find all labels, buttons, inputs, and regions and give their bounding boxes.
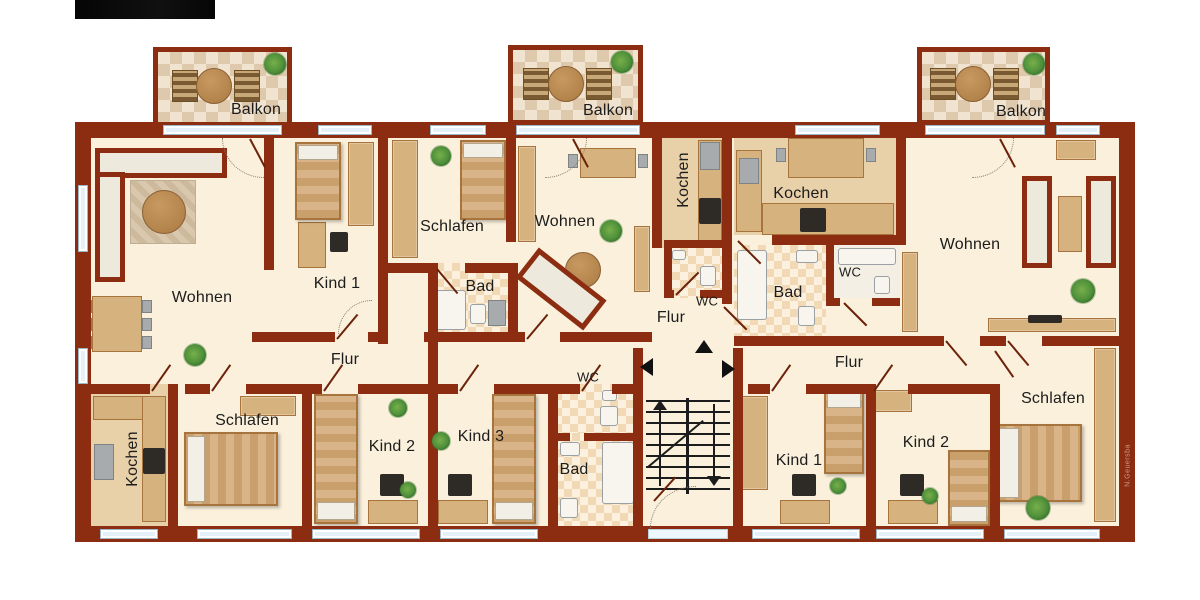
wardrobe: [1094, 348, 1116, 522]
wall: [506, 138, 516, 242]
balcony-chairs-icon: [172, 70, 198, 102]
wall: [302, 384, 312, 526]
balcony-chairs-icon: [523, 68, 549, 100]
stove-icon: [699, 198, 721, 224]
floor-plan: Balkon Balkon Balkon Wohnen Kind 1 Flur …: [0, 0, 1200, 600]
chair: [142, 300, 152, 313]
sofa: [1022, 176, 1052, 268]
watermark: N.Geuersba: [1125, 442, 1132, 490]
room-label-kochen-lower-left: Kochen: [124, 431, 142, 486]
wall: [436, 384, 458, 394]
room-label-balkon-middle: Balkon: [583, 102, 633, 120]
pillow: [317, 502, 355, 520]
pillow: [298, 145, 338, 160]
balcony-chairs-icon: [930, 68, 956, 100]
balcony-table-icon: [955, 66, 991, 102]
window: [78, 348, 88, 384]
bathtub: [602, 442, 634, 504]
window: [163, 125, 282, 135]
plant-icon: [1023, 53, 1045, 75]
room-label-wohnen-middle: Wohnen: [535, 213, 596, 231]
bathtub: [737, 250, 767, 320]
toilet-icon: [600, 406, 618, 426]
room-label-kochen-middle: Kochen: [675, 152, 693, 207]
toilet-icon: [874, 276, 890, 294]
toilet-icon: [798, 306, 815, 326]
wall: [772, 235, 906, 245]
chair: [866, 148, 876, 162]
wall: [560, 332, 652, 342]
stair-arrow-down-line: [713, 404, 715, 478]
stair-arrow-up-line: [659, 408, 661, 486]
wall: [826, 245, 834, 298]
wall: [826, 298, 840, 306]
sink-icon: [560, 442, 580, 456]
wall: [428, 263, 438, 526]
wall: [652, 138, 662, 248]
plant-icon: [600, 220, 622, 242]
pillow: [495, 502, 533, 520]
cabinet: [902, 252, 918, 332]
plant-icon: [431, 146, 451, 166]
plant-icon: [389, 399, 407, 417]
wall: [494, 384, 554, 394]
stove-icon: [143, 448, 165, 474]
toilet-icon: [470, 304, 486, 324]
desk-chair: [792, 474, 816, 496]
wall: [358, 384, 436, 394]
room-label-wohnen-right: Wohnen: [940, 236, 1001, 254]
chair: [638, 154, 648, 168]
plant-icon: [400, 482, 416, 498]
balcony-chairs-icon: [586, 68, 612, 100]
stair-stringer: [686, 398, 689, 494]
plant-icon: [432, 432, 450, 450]
pillow: [827, 393, 861, 408]
cabinet: [1056, 140, 1096, 160]
room-label-flur-right: Flur: [835, 354, 863, 372]
window: [312, 529, 420, 539]
direction-arrow-icon: [640, 358, 653, 376]
room-label-kind1-left: Kind 1: [314, 275, 361, 293]
wall: [424, 332, 525, 342]
pillow: [463, 143, 503, 158]
desk-chair: [330, 232, 348, 252]
stair-arrow-down-icon: [707, 476, 721, 486]
coffee-table: [1058, 196, 1082, 252]
plant-icon: [1026, 496, 1050, 520]
window: [752, 529, 860, 539]
plant-icon: [830, 478, 846, 494]
sink-icon: [739, 158, 759, 184]
room-label-wohnen-left: Wohnen: [172, 289, 233, 307]
fridge: [700, 142, 720, 170]
stove-icon: [800, 208, 826, 232]
room-label-kind2-right: Kind 2: [903, 434, 950, 452]
plant-icon: [611, 51, 633, 73]
entrance-door[interactable]: [648, 529, 728, 539]
room-label-flur-middle: Flur: [657, 309, 685, 327]
room-label-wc-right: WC: [839, 265, 861, 280]
balcony-chairs-icon: [993, 68, 1019, 100]
plant-icon: [264, 53, 286, 75]
room-label-bad-middle: Bad: [465, 278, 494, 296]
wall: [168, 384, 178, 526]
window: [925, 125, 1045, 135]
window: [440, 529, 538, 539]
chair: [776, 148, 786, 162]
logo-bar: [75, 0, 215, 19]
room-label-wc-middle: WC: [696, 294, 718, 309]
plant-icon: [1071, 279, 1095, 303]
desk-chair: [900, 474, 924, 496]
wall: [264, 138, 274, 270]
wall: [252, 332, 335, 342]
wardrobe: [872, 390, 912, 412]
window: [78, 185, 88, 252]
wardrobe: [348, 142, 374, 226]
chair: [142, 336, 152, 349]
balcony-chairs-icon: [234, 70, 260, 102]
wall: [378, 138, 388, 344]
balcony-table-icon: [548, 66, 584, 102]
window: [100, 529, 158, 539]
pillow: [999, 428, 1019, 498]
washer-icon: [488, 300, 506, 326]
desk: [368, 500, 418, 524]
wall: [548, 384, 558, 526]
room-label-balkon-left: Balkon: [231, 101, 281, 119]
wall: [556, 433, 570, 441]
tv-icon: [1028, 315, 1062, 323]
wall: [664, 240, 722, 248]
wall: [584, 433, 640, 441]
toilet-icon: [700, 266, 716, 286]
window: [1056, 125, 1100, 135]
sink-icon: [672, 250, 686, 260]
window: [516, 125, 640, 135]
direction-arrow-icon: [695, 340, 713, 353]
wall: [980, 336, 1006, 346]
room-label-kind1-right: Kind 1: [776, 452, 823, 470]
kitchen-counter: [762, 203, 894, 235]
sofa: [1086, 176, 1116, 268]
desk: [780, 500, 830, 524]
room-label-schlafen-middle: Schlafen: [420, 218, 484, 236]
wall: [806, 384, 872, 394]
wall: [91, 384, 150, 394]
window: [197, 529, 292, 539]
sink-icon: [796, 250, 818, 263]
wall: [866, 384, 876, 526]
dining-table: [788, 138, 864, 178]
room-label-flur-left: Flur: [331, 351, 359, 369]
wall: [508, 263, 518, 342]
desk: [298, 222, 326, 268]
wall: [185, 384, 210, 394]
wall: [722, 138, 732, 304]
window: [430, 125, 486, 135]
toilet-icon: [560, 498, 578, 518]
wardrobe: [740, 396, 768, 490]
bathtub: [838, 248, 896, 265]
room-label-kochen-right: Kochen: [773, 185, 828, 203]
wall: [664, 290, 674, 298]
stair-arrow-up-icon: [653, 400, 667, 410]
dining-table: [92, 296, 142, 352]
window: [1004, 529, 1100, 539]
wardrobe: [392, 140, 418, 258]
wall: [734, 336, 944, 346]
room-label-bad-right: Bad: [773, 284, 802, 302]
balcony-table-icon: [196, 68, 232, 104]
dining-table: [580, 148, 636, 178]
plant-icon: [922, 488, 938, 504]
room-label-schlafen-right: Schlafen: [1021, 390, 1085, 408]
cabinet: [634, 226, 650, 292]
desk: [438, 500, 488, 524]
wall: [896, 138, 906, 245]
wall: [1042, 336, 1119, 346]
wall: [990, 384, 1000, 526]
chair: [142, 318, 152, 331]
room-label-schlafen-lower-left: Schlafen: [215, 412, 279, 430]
wardrobe: [518, 146, 536, 242]
pillow: [951, 506, 987, 522]
coffee-table-icon: [142, 190, 186, 234]
window: [318, 125, 372, 135]
room-label-kind2-left: Kind 2: [369, 438, 416, 456]
wall: [908, 384, 998, 394]
room-label-bad-lower: Bad: [559, 461, 588, 479]
room-label-balkon-right: Balkon: [996, 103, 1046, 121]
plant-icon: [184, 344, 206, 366]
sofa: [95, 172, 125, 282]
room-label-wc-stairwell: WC: [577, 370, 599, 385]
window: [795, 125, 880, 135]
room-label-kind3-middle: Kind 3: [458, 428, 505, 446]
direction-arrow-icon: [722, 360, 735, 378]
wall: [748, 384, 770, 394]
desk-chair: [448, 474, 472, 496]
wall: [872, 298, 900, 306]
fridge: [94, 444, 114, 480]
window: [876, 529, 984, 539]
pillow: [187, 436, 205, 502]
